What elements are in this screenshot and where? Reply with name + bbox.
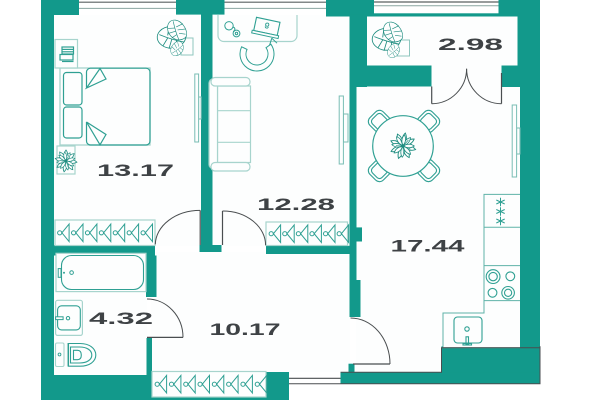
svg-text:17.44: 17.44 (391, 238, 466, 256)
svg-text:12.28: 12.28 (257, 196, 335, 214)
svg-text:2.98: 2.98 (438, 36, 503, 54)
svg-text:4.32: 4.32 (89, 310, 153, 328)
svg-text:10.17: 10.17 (210, 321, 281, 339)
svg-text:13.17: 13.17 (97, 162, 174, 180)
